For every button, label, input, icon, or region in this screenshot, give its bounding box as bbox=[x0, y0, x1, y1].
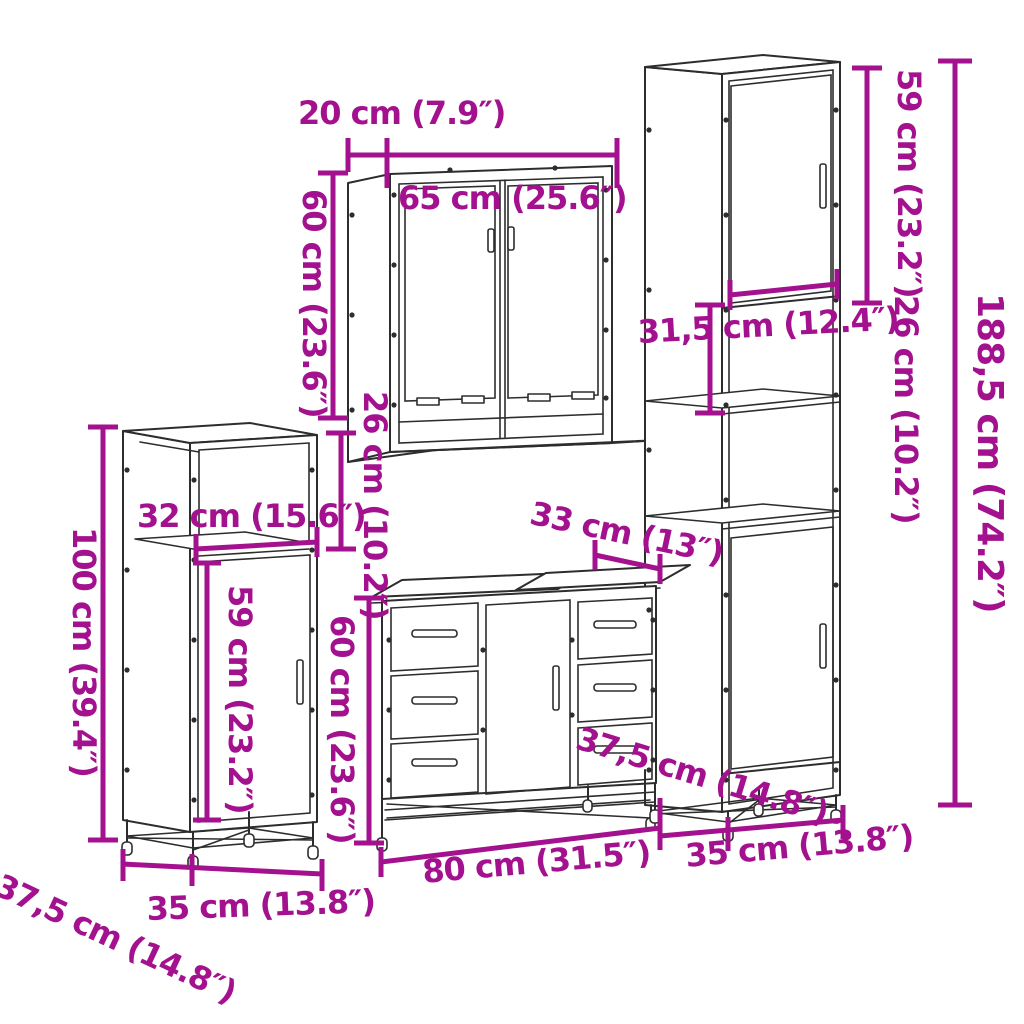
vanity-cabinet-drawing bbox=[372, 565, 690, 851]
mirror-door-handle-left bbox=[488, 229, 494, 252]
dim-label-side-width: 35 cm (13.8″) bbox=[146, 885, 376, 927]
tall-upper-door-handle bbox=[820, 164, 826, 208]
dim-label-mirror-depth: 20 cm (7.9″) bbox=[298, 97, 505, 131]
dim-label-tall-upper-door-height: 59 cm (23.2″) bbox=[891, 69, 925, 298]
dim-label-mirror-width: 65 cm (25.6″) bbox=[398, 182, 627, 216]
dim-label-side-height: 100 cm (39.4″) bbox=[66, 527, 100, 777]
tall-lower-door-handle bbox=[820, 624, 826, 668]
mirror-door-handle-right bbox=[508, 227, 514, 250]
side-cabinet-drawing bbox=[122, 423, 318, 869]
dimline-tall-door-height bbox=[852, 68, 882, 303]
dimline-tall-total-height bbox=[938, 61, 972, 805]
furniture-dimension-diagram: 20 cm (7.9″) 65 cm (25.6″) 60 cm (23.6″)… bbox=[0, 0, 1024, 1024]
tall-cabinet-drawing bbox=[645, 55, 841, 841]
vanity-door-handle bbox=[553, 666, 559, 710]
side-cabinet-door-handle bbox=[297, 660, 303, 704]
dim-label-side-inner-width: 32 cm (15.6″) bbox=[137, 500, 366, 534]
dim-label-side-door-height: 59 cm (23.2″) bbox=[222, 585, 256, 814]
dim-label-tall-total-height: 188,5 cm (74.2″) bbox=[970, 293, 1008, 613]
dim-label-mirror-height: 60 cm (23.6″) bbox=[296, 189, 330, 418]
dim-label-vanity-height: 60 cm (23.6″) bbox=[324, 615, 358, 844]
